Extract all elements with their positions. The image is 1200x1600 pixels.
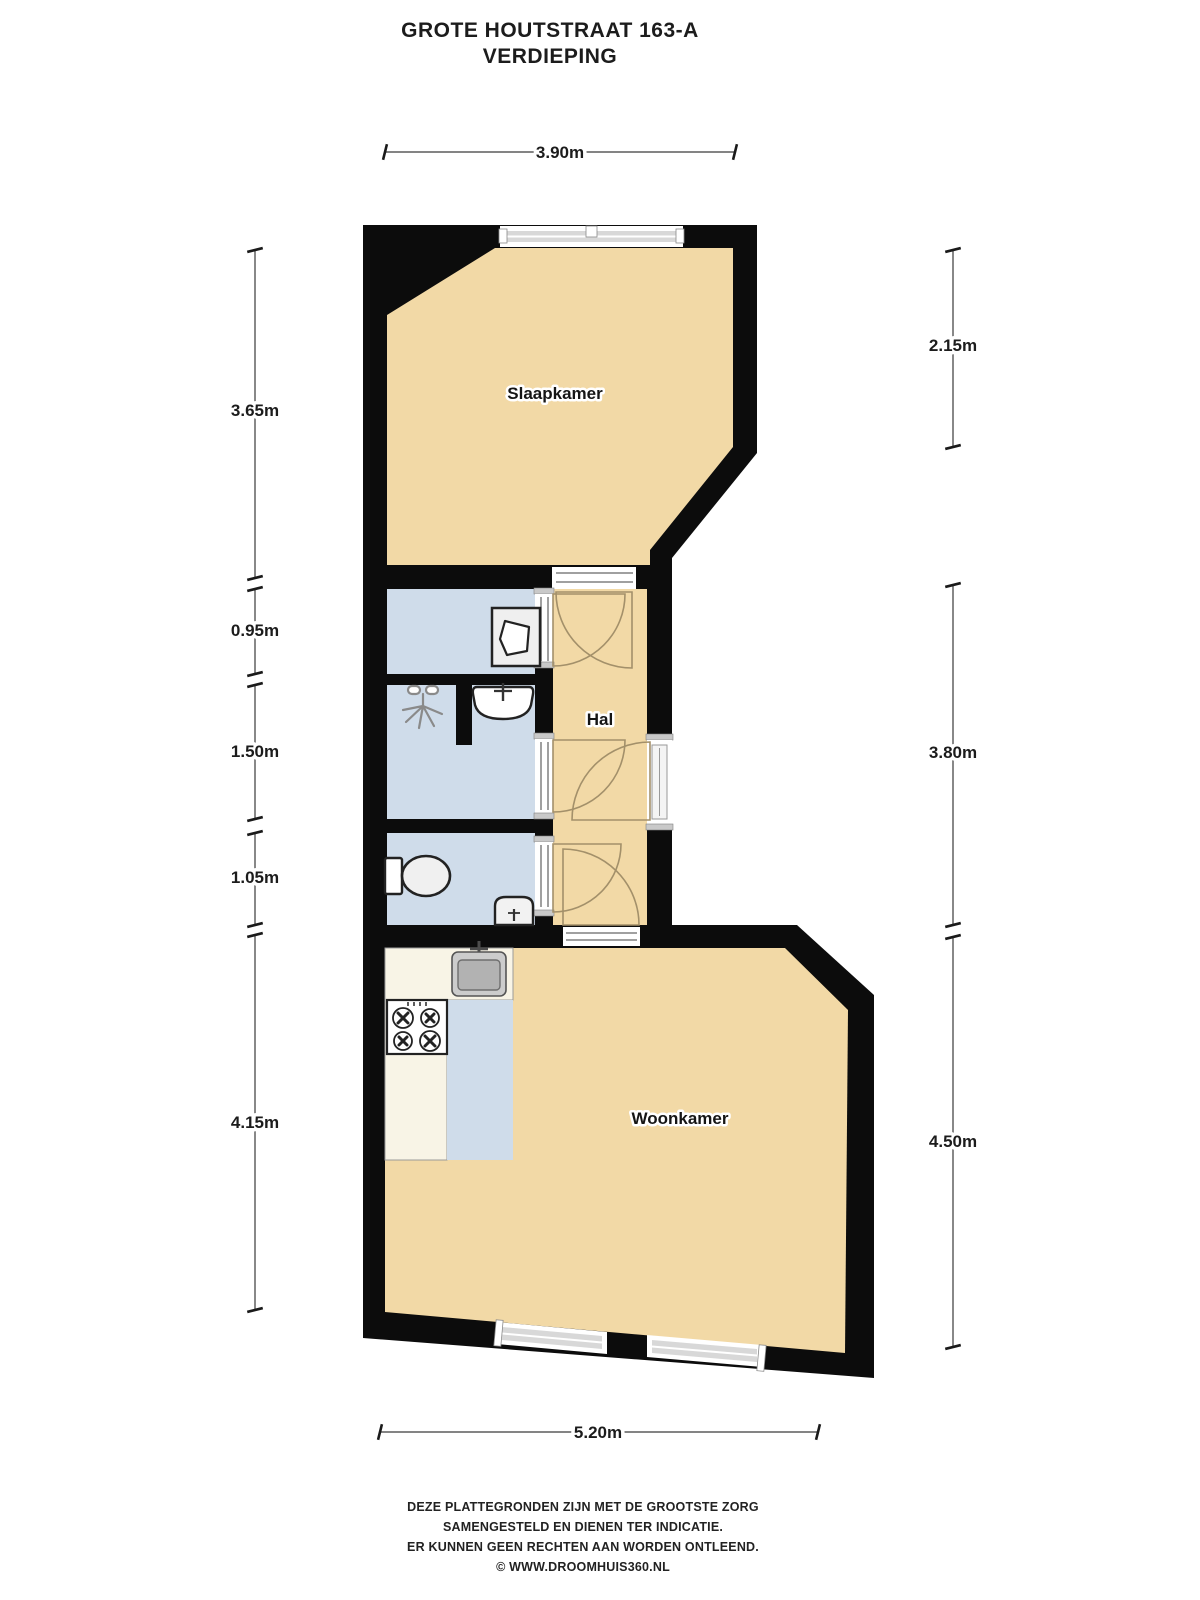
floorplan-canvas: Slaapkamer Hal Woonkamer 3.90m 3.65m	[0, 0, 1200, 1600]
floorplan-page: GROTE HOUTSTRAAT 163-A VERDIEPING	[0, 0, 1200, 1600]
washbasin-icon	[473, 683, 533, 719]
room-label-bedroom: Slaapkamer	[507, 384, 603, 403]
disclaimer-line-4: © WWW.DROOMHUIS360.NL	[283, 1557, 883, 1577]
dim-label-top: 3.90m	[536, 143, 584, 162]
room-label-living: Woonkamer	[632, 1109, 729, 1128]
dim-label-left-4: 1.05m	[231, 868, 279, 887]
dim-bottom: 5.20m	[378, 1423, 820, 1442]
disclaimer: DEZE PLATTEGRONDEN ZIJN MET DE GROOTSTE …	[283, 1497, 883, 1577]
washing-machine-icon	[492, 608, 540, 666]
dim-right-2: 3.80m	[929, 583, 977, 927]
dim-left-3: 1.50m	[231, 683, 279, 821]
kitchen-floor	[447, 1000, 513, 1160]
dim-label-left-3: 1.50m	[231, 742, 279, 761]
dim-label-left-5: 4.15m	[231, 1113, 279, 1132]
dim-right-1: 2.15m	[929, 248, 977, 449]
hall-floor	[553, 589, 647, 925]
dim-left-4: 1.05m	[231, 831, 279, 927]
dim-label-right-3: 4.50m	[929, 1132, 977, 1151]
stove-icon	[387, 1000, 447, 1054]
dim-label-bottom: 5.20m	[574, 1423, 622, 1442]
dim-right-3: 4.50m	[929, 935, 977, 1349]
shower-partition-wall	[456, 685, 472, 745]
room-floors	[385, 248, 848, 1353]
dim-label-left-1: 3.65m	[231, 401, 279, 420]
toilet-icon	[385, 856, 450, 896]
window-icon	[499, 226, 684, 247]
door-shower-room	[534, 733, 554, 819]
disclaimer-line-3: ER KUNNEN GEEN RECHTEN AAN WORDEN ONTLEE…	[283, 1537, 883, 1557]
dim-left-5: 4.15m	[231, 933, 279, 1312]
dim-left-2: 0.95m	[231, 587, 279, 676]
door-toilet	[534, 836, 554, 916]
disclaimer-line-2: SAMENGESTELD EN DIENEN TER INDICATIE.	[283, 1517, 883, 1537]
dim-left-1: 3.65m	[231, 248, 279, 580]
hand-basin-icon	[495, 897, 533, 925]
door-sill-hall-living	[563, 927, 640, 946]
disclaimer-line-1: DEZE PLATTEGRONDEN ZIJN MET DE GROOTSTE …	[283, 1497, 883, 1517]
door-sill-bedroom-hall	[552, 567, 636, 589]
room-label-hall: Hal	[587, 710, 613, 729]
dim-top: 3.90m	[383, 143, 737, 162]
dim-label-right-2: 3.80m	[929, 743, 977, 762]
dim-label-left-2: 0.95m	[231, 621, 279, 640]
dim-label-right-1: 2.15m	[929, 336, 977, 355]
